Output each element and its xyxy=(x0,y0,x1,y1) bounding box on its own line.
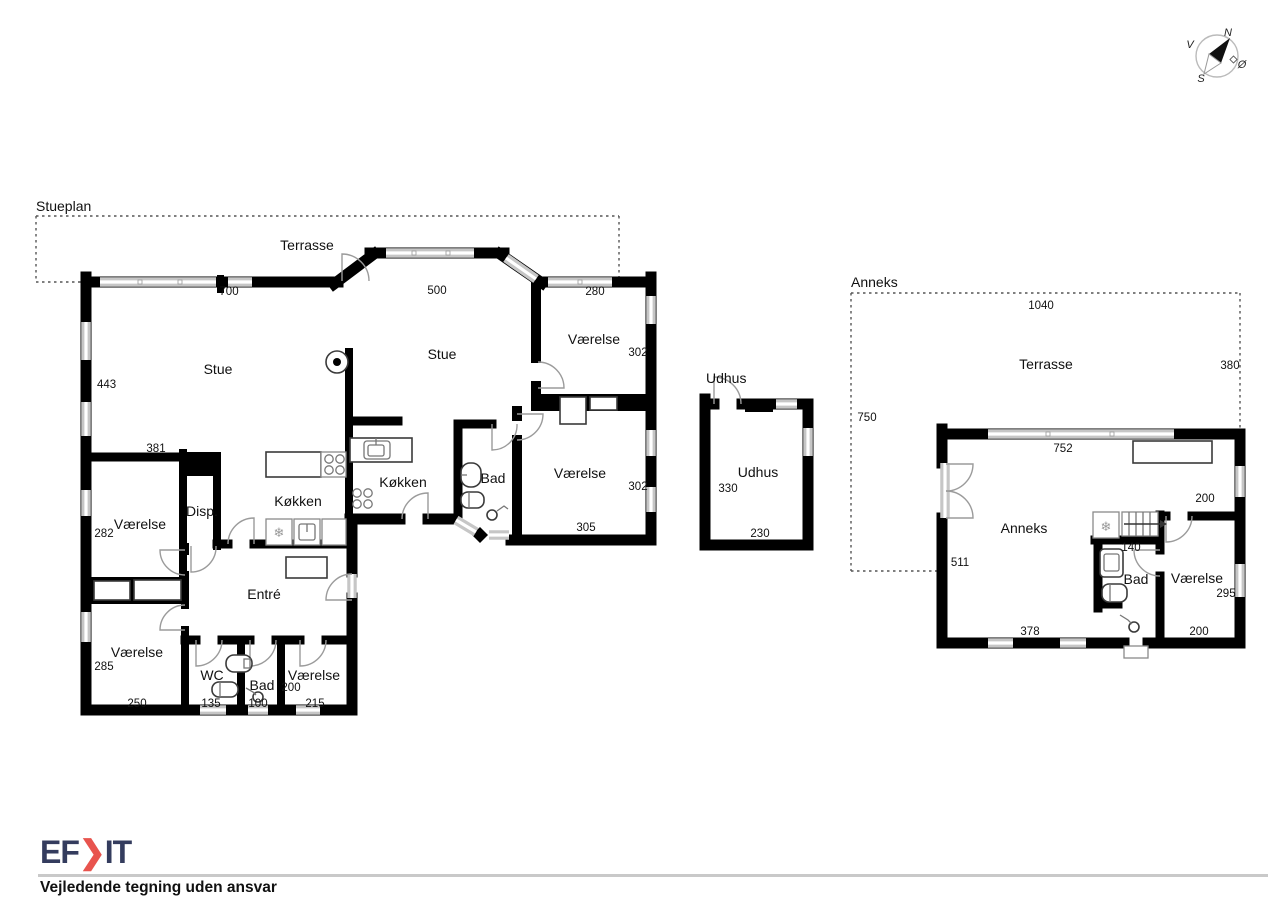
logo-prefix: EF xyxy=(40,834,79,870)
wood-stove-icon xyxy=(326,351,348,373)
shower-icon xyxy=(487,510,497,520)
dim-250: 250 xyxy=(127,698,146,710)
dim-500: 500 xyxy=(427,285,446,297)
svg-text:❄: ❄ xyxy=(1101,520,1112,535)
compass-west: V xyxy=(1186,39,1195,51)
toilet-icon xyxy=(461,492,484,508)
compass-north: N xyxy=(1224,27,1232,39)
anneks-title: Anneks xyxy=(851,274,898,290)
label-disp: Disp. xyxy=(186,503,218,519)
dim-330: 330 xyxy=(718,483,737,495)
dim-280: 280 xyxy=(585,286,604,298)
label-entre: Entré xyxy=(247,586,281,602)
dim-302-top: 302 xyxy=(628,347,647,359)
toilet-icon xyxy=(212,682,238,697)
label-anneks-vaerelse: Værelse xyxy=(1171,570,1223,586)
label-stue-left: Stue xyxy=(204,361,233,377)
udhus-title: Udhus xyxy=(706,370,746,386)
label-vaerelse-bottom-mid: Værelse xyxy=(288,667,340,683)
dim-700: 700 xyxy=(219,286,238,298)
dim-140: 140 xyxy=(1121,542,1140,554)
label-wc: WC xyxy=(200,667,223,683)
dim-1040: 1040 xyxy=(1028,300,1054,312)
dim-200-wardrobe: 200 xyxy=(1195,493,1214,505)
dim-305: 305 xyxy=(576,522,595,534)
shower-icon xyxy=(1129,622,1139,632)
label-stue-right: Stue xyxy=(428,346,457,362)
disp-corner-wall xyxy=(181,452,221,476)
efkit-logo: EF❯IT xyxy=(40,836,131,868)
entre-closet xyxy=(286,557,327,578)
compass-icon: N V S Ø xyxy=(1186,27,1247,85)
dim-302-mid: 302 xyxy=(628,481,647,493)
label-koekken-right: Køkken xyxy=(379,474,426,490)
dim-380: 380 xyxy=(1220,360,1239,372)
dim-295: 295 xyxy=(1216,588,1235,600)
label-udhus-room: Udhus xyxy=(738,464,778,480)
label-koekken-left: Køkken xyxy=(274,493,321,509)
dim-200-bm: 200 xyxy=(281,682,300,694)
label-anneks-room: Anneks xyxy=(1001,520,1048,536)
dim-511: 511 xyxy=(951,557,969,569)
dim-381: 381 xyxy=(146,443,165,455)
dim-100: 100 xyxy=(248,698,267,710)
label-terrasse: Terrasse xyxy=(280,237,334,253)
label-anneks-terrasse: Terrasse xyxy=(1019,356,1073,372)
logo-suffix: IT xyxy=(105,834,131,870)
floorplan-page: ❄ xyxy=(0,0,1280,905)
label-vaerelse-mid-right: Værelse xyxy=(554,465,606,481)
main-house-walls xyxy=(86,253,651,710)
dim-215: 215 xyxy=(305,698,324,710)
dim-135: 135 xyxy=(201,698,220,710)
footer-divider xyxy=(38,874,1268,877)
stueplan-title: Stueplan xyxy=(36,198,91,214)
label-bad-bottom: Bad xyxy=(250,677,275,693)
compass-south: S xyxy=(1197,73,1205,85)
dim-443: 443 xyxy=(97,379,116,391)
dim-285: 285 xyxy=(94,661,113,673)
floorplan-drawing: ❄ xyxy=(0,0,1280,905)
door-step xyxy=(1124,646,1148,658)
dim-750: 750 xyxy=(857,412,876,424)
compass-east: Ø xyxy=(1237,59,1248,71)
washbasin-icon xyxy=(226,655,252,672)
svg-text:❄: ❄ xyxy=(274,526,285,541)
label-vaerelse-left: Værelse xyxy=(114,516,166,532)
label-anneks-bad: Bad xyxy=(1124,571,1149,587)
label-vaerelse-bottom-left: Værelse xyxy=(111,644,163,660)
disclaimer-text: Vejledende tegning uden ansvar xyxy=(40,879,277,897)
dim-200-vaerelse: 200 xyxy=(1189,626,1208,638)
dim-378: 378 xyxy=(1020,626,1039,638)
logo-chevron-icon: ❯ xyxy=(79,834,105,870)
label-bad-center: Bad xyxy=(481,470,506,486)
wardrobe xyxy=(1133,441,1212,463)
dim-230: 230 xyxy=(750,528,769,540)
label-vaerelse-top-right: Værelse xyxy=(568,331,620,347)
dim-282: 282 xyxy=(94,528,113,540)
dim-752: 752 xyxy=(1053,443,1072,455)
